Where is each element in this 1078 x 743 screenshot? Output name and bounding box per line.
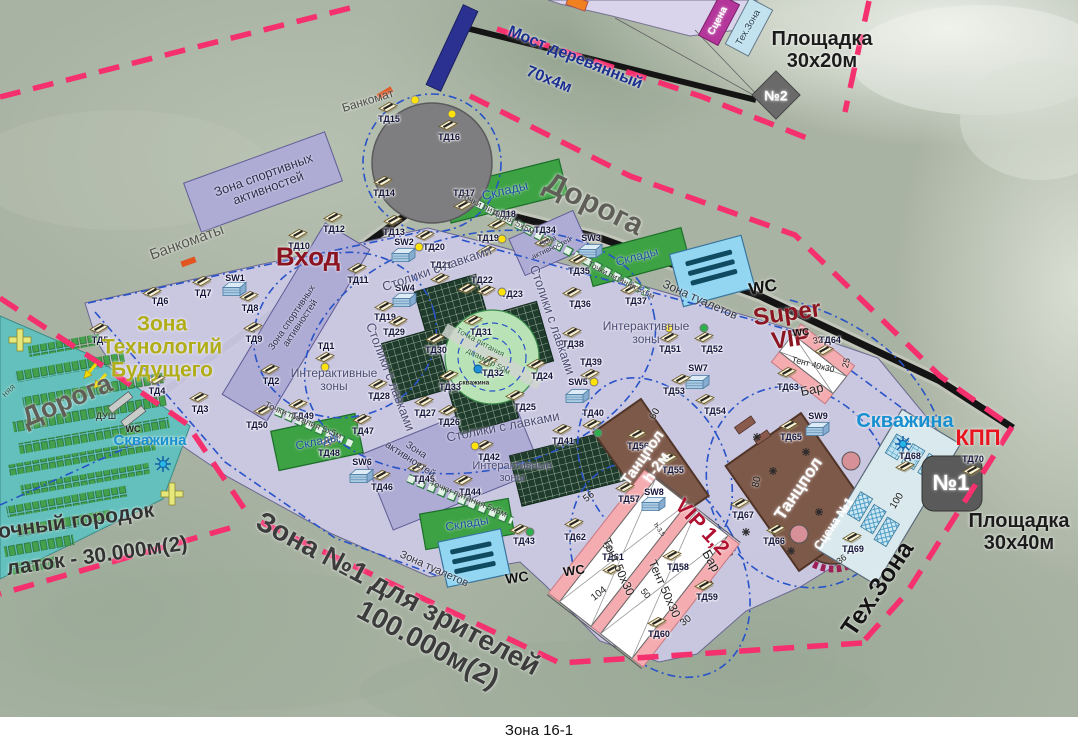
pad2-diamond — [752, 71, 800, 119]
site-map: ТД1ТД2ТД3ТД4ТД5ТД6ТД7SW1ТД8ТД9ТД10ТД11ТД… — [0, 0, 1078, 717]
map-caption: Зона 16-1 — [0, 722, 1078, 739]
stage-tower — [790, 525, 808, 543]
atm-tick-icon — [180, 256, 196, 267]
atm-roundabout — [372, 86, 492, 223]
north-orange-block — [566, 0, 588, 11]
site-plan-page: { "caption": "Зона 16-1", "colors": { "b… — [0, 0, 1078, 743]
well-drop-icon — [474, 365, 482, 373]
atm-tick-icon — [377, 86, 394, 99]
sun-well-icon — [895, 436, 911, 452]
sun-well-icon — [155, 456, 171, 472]
yellow-point — [411, 96, 419, 104]
map-graphics — [0, 0, 1078, 717]
wooden-bridge — [426, 5, 478, 92]
stage-tower — [842, 452, 860, 470]
